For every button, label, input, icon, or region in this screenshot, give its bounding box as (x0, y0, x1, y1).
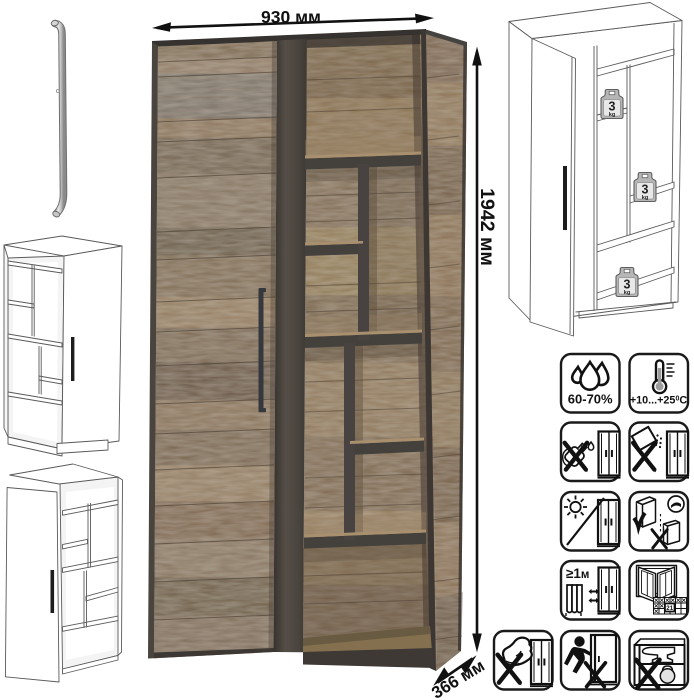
svg-text:930 мм: 930 мм (261, 7, 321, 27)
svg-text:kg: kg (624, 290, 631, 296)
svg-text:1942 мм: 1942 мм (476, 188, 498, 266)
svg-text:≥1м: ≥1м (566, 566, 589, 581)
svg-text:kg: kg (642, 195, 649, 201)
svg-text:60-70%: 60-70% (568, 392, 613, 407)
svg-text:kg: kg (609, 112, 616, 118)
svg-text:+10...+250С: +10...+250С (630, 395, 688, 407)
svg-text:21: 21 (666, 605, 673, 612)
